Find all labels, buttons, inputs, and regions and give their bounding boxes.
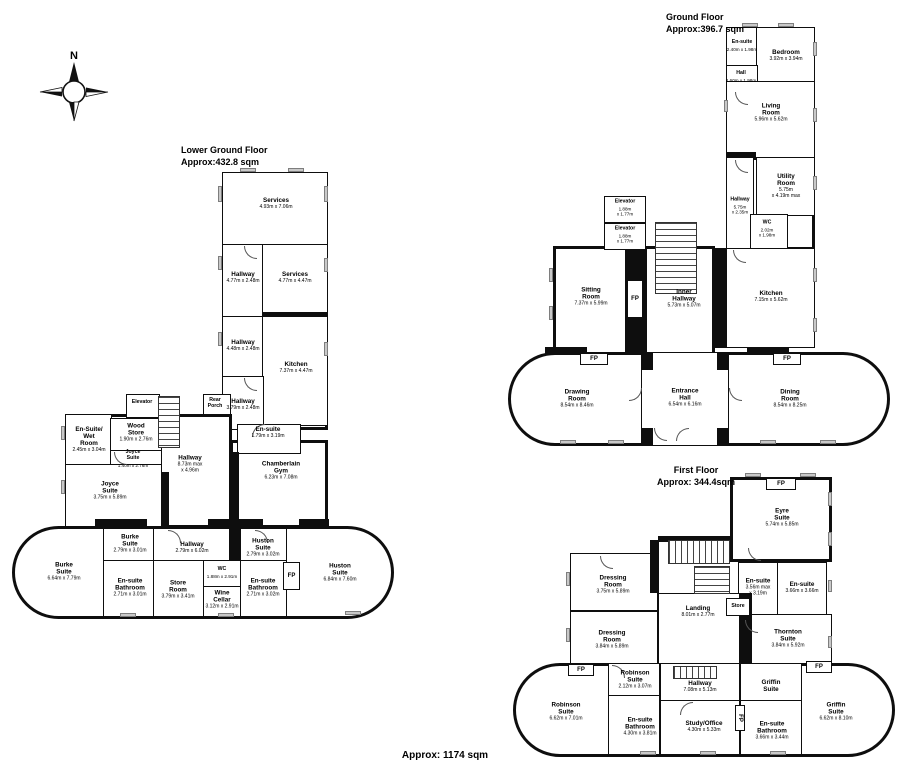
room-dimensions: 7.15m x 5.62m <box>754 298 787 304</box>
room-name: Elevator <box>615 199 635 205</box>
room-dimensions: 6.84m x 7.60m <box>323 578 356 584</box>
room-label-services: Services4.77m x 4.47m <box>278 271 311 285</box>
compass-east-point <box>86 88 108 93</box>
window-marker <box>218 332 222 346</box>
room-dimensions: 3.56m max x 3.19m <box>746 585 771 596</box>
window-marker <box>742 23 758 27</box>
room-dimensions: 1.79m x 3.19m <box>251 434 284 440</box>
room-name: WC <box>207 567 237 573</box>
window-marker <box>288 168 304 172</box>
window-marker <box>828 636 832 648</box>
room-label-living-room: Living Room5.96m x 5.62m <box>754 103 787 124</box>
room-dimensions: 6.54m x 6.16m <box>668 403 701 409</box>
room-label-thornton-suite: Thornton Suite3.84m x 5.92m <box>771 629 804 650</box>
fireplace-marker: FP <box>773 353 801 365</box>
room-name: En-Suite/ Wet Room <box>72 426 105 447</box>
room-dimensions: 7.08m x 5.13m <box>683 688 716 694</box>
room-label-hallway: Hallway8.73m max x 4.96m <box>178 454 203 473</box>
room-label-wc: WC2.02m x 1.98m <box>759 220 775 237</box>
room-name: Services <box>278 271 311 278</box>
room-label-wc: WC1.88m x 2.91m <box>207 567 237 579</box>
room-label-en-suite-bathroom: En-suite Bathroom3.66m x 3.44m <box>755 721 788 742</box>
floor-title: Ground Floor <box>666 12 744 24</box>
room-label-dressing-room: Dressing Room3.84m x 5.89m <box>595 630 628 651</box>
floor-area: Approx:396.7 sqm <box>666 24 744 36</box>
room-dimensions: 5.74m x 5.85m <box>765 523 798 529</box>
compass-west-point <box>40 92 62 97</box>
room-dimensions: 6.62m x 7.01m <box>549 717 582 723</box>
room-dimensions: 4.30m x 5.33m <box>685 728 722 734</box>
wall <box>650 540 659 593</box>
room-name: Drawing Room <box>560 389 593 403</box>
room-label-kitchen: Kitchen7.37m x 4.47m <box>279 361 312 375</box>
fireplace-label: FP <box>737 714 743 722</box>
window-marker <box>61 480 65 494</box>
floor-title: Lower Ground Floor <box>181 145 268 157</box>
compass-rose: N <box>36 48 110 124</box>
room-dimensions: 3.79m x 2.48m <box>226 406 259 412</box>
room-dimensions: 3.66m x 3.44m <box>755 736 788 742</box>
staircase <box>673 666 717 679</box>
room-name: Utility Room <box>772 173 801 187</box>
room-dimensions: 6.64m x 7.79m <box>47 577 80 583</box>
room-dimensions: 1.90m x 2.76m <box>119 438 152 444</box>
staircase <box>655 222 697 294</box>
room-label-robinson-suite: Robinson Suite6.62m x 7.01m <box>549 702 582 723</box>
window-marker <box>549 306 553 320</box>
room-label-store-room: Store Room3.79m x 3.41m <box>161 580 194 601</box>
fireplace-label: FP <box>783 356 791 362</box>
room-name: Burke Suite <box>47 562 80 576</box>
compass-circle <box>63 81 85 103</box>
fireplace-marker: FP <box>580 353 608 365</box>
fireplace-marker: FP <box>735 705 745 731</box>
room-label-utility-room: Utility Room5.75m x 4.19m max <box>772 173 801 199</box>
room-dimensions: 2.02m x 1.98m <box>759 227 775 237</box>
room-label-eyre-suite: Eyre Suite5.74m x 5.85m <box>765 508 798 529</box>
window-marker <box>120 613 136 617</box>
room-dimensions: 4.77m x 2.48m <box>226 279 259 285</box>
room-name: Hallway <box>175 541 208 548</box>
room-dimensions: 8.01m x 2.77m <box>681 613 714 619</box>
room-name: Joyce Suite <box>118 450 148 462</box>
room-label-griffin-suite: Griffin Suite6.62m x 8.10m <box>819 702 852 723</box>
room-name: WC <box>759 220 775 226</box>
room-label-hallway: Hallway4.48m x 2.48m <box>226 339 259 353</box>
window-marker <box>324 342 328 356</box>
room-name: Rear Porch <box>208 398 223 410</box>
room-label-rear-porch: Rear Porch <box>208 398 223 410</box>
room-name: Dressing Room <box>596 575 629 589</box>
room-label-landing: Landing8.01m x 2.77m <box>681 605 714 619</box>
window-marker <box>61 426 65 440</box>
room-name: Huston Suite <box>246 538 279 552</box>
window-marker <box>813 318 817 332</box>
room-label-kitchen: Kitchen7.15m x 5.62m <box>754 290 787 304</box>
room-label-bedroom: Bedroom3.92m x 3.94m <box>769 49 802 63</box>
room-name: Chamberlain Gym <box>262 461 300 475</box>
room-dimensions: 3.12m x 2.91m <box>205 605 238 611</box>
room-name: En-suite Bathroom <box>755 721 788 735</box>
room-label-burke-suite: Burke Suite2.79m x 3.01m <box>113 534 146 555</box>
room-name: Hallway <box>730 197 749 203</box>
room-dimensions: 2.79m x 6.02m <box>175 549 208 555</box>
room-name: Wine Cellar <box>205 590 238 604</box>
room-dimensions: 4.48m x 2.48m <box>226 347 259 353</box>
room-dimensions: 2.45m x 3.04m <box>72 448 105 454</box>
window-marker <box>608 440 624 444</box>
floor-title: First Floor <box>636 465 756 477</box>
room-name: Kitchen <box>279 361 312 368</box>
window-marker <box>778 23 794 27</box>
room-name: Dressing Room <box>595 630 628 644</box>
room-dimensions: 4.77m x 4.47m <box>278 279 311 285</box>
window-marker <box>813 268 817 282</box>
fireplace-label: FP <box>288 573 296 579</box>
room-dimensions: 5.96m x 5.62m <box>754 118 787 124</box>
room-dimensions: 2.71m x 3.02m <box>246 593 279 599</box>
room-dimensions: 2.40m x 1.98m <box>727 47 757 52</box>
window-marker <box>218 256 222 270</box>
window-marker <box>218 613 234 617</box>
room-dimensions: 3.84m x 5.92m <box>771 644 804 650</box>
window-marker <box>828 532 832 546</box>
room-label-griffin-suite: Griffin Suite <box>762 679 781 693</box>
compass-north-label: N <box>70 50 78 62</box>
room-dimensions: 6.62m x 8.10m <box>819 717 852 723</box>
room-dimensions: 7.37m x 4.47m <box>279 369 312 375</box>
room-name: Entrance Hall <box>668 388 701 402</box>
room-label-study-office: Study/Office4.30m x 5.33m <box>685 720 722 734</box>
staircase <box>668 540 730 564</box>
room-label-hallway: Hallway5.75m x 2.35m <box>730 197 749 214</box>
window-marker <box>640 751 656 755</box>
fireplace-marker: FP <box>627 280 643 318</box>
room-name: En-suite <box>727 40 757 46</box>
room-name: Griffin Suite <box>762 679 781 693</box>
room-name: En-suite <box>785 581 818 588</box>
window-marker <box>240 168 256 172</box>
window-marker <box>813 42 817 56</box>
room-label-dining-room: Dining Room8.54m x 8.25m <box>773 389 806 410</box>
room-name: Hallway <box>226 339 259 346</box>
room-dimensions: 4.93m x 7.06m <box>259 205 292 211</box>
room-name: Thornton Suite <box>771 629 804 643</box>
lower-ground-floor-title: Lower Ground Floor Approx:432.8 sqm <box>181 145 268 168</box>
compass-south-point <box>69 102 74 121</box>
room-label-huston-suite: Huston Suite6.84m x 7.60m <box>323 563 356 584</box>
room-dimensions: 8.54m x 8.46m <box>560 404 593 410</box>
room-label-sitting-room: Sitting Room7.37m x 5.99m <box>574 287 607 308</box>
staircase <box>158 396 180 448</box>
room-label-en-suite: En-suite2.40m x 1.98m <box>727 40 757 52</box>
room-name: Inner Hallway <box>667 289 700 303</box>
room-dimensions: 2.60m x 1.98m <box>726 78 756 83</box>
room-name: Hallway <box>226 271 259 278</box>
room-name: Huston Suite <box>323 563 356 577</box>
room-dimensions: 2.71m x 3.01m <box>113 593 146 599</box>
room-name: Hallway <box>683 680 716 687</box>
room-label-dressing-room: Dressing Room3.75m x 5.89m <box>596 575 629 596</box>
compass-north-point <box>69 62 79 82</box>
room-name: Living Room <box>754 103 787 117</box>
fireplace-label: FP <box>815 664 823 670</box>
room-label-elevator: Elevator <box>132 400 152 406</box>
room-label-entrance-hall: Entrance Hall6.54m x 6.16m <box>668 388 701 409</box>
room-dimensions: 8.54m x 8.25m <box>773 404 806 410</box>
fireplace-marker: FP <box>568 664 594 676</box>
window-marker <box>813 108 817 122</box>
room-name: Services <box>259 197 292 204</box>
room-dimensions: 6.23m x 7.08m <box>262 476 300 482</box>
window-marker <box>566 572 570 586</box>
window-marker <box>828 580 832 592</box>
room-label-huston-suite: Huston Suite2.79m x 3.02m <box>246 538 279 559</box>
room-name: Joyce Suite <box>93 481 126 495</box>
room-label-hallway: Hallway7.08m x 5.13m <box>683 680 716 694</box>
window-marker <box>218 186 222 202</box>
room-label-en-suite: En-suite1.79m x 3.19m <box>251 426 284 440</box>
room-dimensions: 7.37m x 5.99m <box>574 302 607 308</box>
room-name: Bedroom <box>769 49 802 56</box>
room-dimensions: 1.40m x 2.76m <box>118 463 148 468</box>
room-name: Store Room <box>161 580 194 594</box>
room-label-en-suite: En-suite3.56m max x 3.19m <box>746 577 771 596</box>
floorplan-sheet: N Lower Ground Floor Approx:432.8 sqm <box>0 0 897 775</box>
room-label-en-suite-wet-room: En-Suite/ Wet Room2.45m x 3.04m <box>72 426 105 454</box>
floor-area: Approx:432.8 sqm <box>181 157 268 169</box>
room-label-wood-store: Wood Store1.90m x 2.76m <box>119 423 152 444</box>
room-name: Eyre Suite <box>765 508 798 522</box>
room-name: Wood Store <box>119 423 152 437</box>
window-marker <box>724 100 728 112</box>
room-name: Kitchen <box>754 290 787 297</box>
room-label-elevator: Elevator1.88m x 1.77m <box>615 226 635 243</box>
room-label-hallway: Hallway2.79m x 6.02m <box>175 541 208 555</box>
total-area-label: Approx: 1174 sqm <box>370 750 520 761</box>
room-dimensions: 1.88m x 1.77m <box>615 206 635 216</box>
room-dimensions: 5.75m x 4.19m max <box>772 188 801 199</box>
first-floor-title: First Floor Approx: 344.4sqm <box>636 465 756 488</box>
fireplace-label: FP <box>590 356 598 362</box>
fireplace-marker: FP <box>806 661 832 673</box>
window-marker <box>324 258 328 272</box>
staircase <box>694 566 730 594</box>
room-name: En-suite Bathroom <box>113 578 146 592</box>
room-name: Griffin Suite <box>819 702 852 716</box>
room-dimensions: 2.79m x 3.02m <box>246 553 279 559</box>
room-dimensions: 1.88m x 2.91m <box>207 574 237 579</box>
room-dimensions: 3.66m x 3.66m <box>785 589 818 595</box>
room-label-en-suite-bathroom: En-suite Bathroom2.71m x 3.02m <box>246 578 279 599</box>
window-marker <box>324 186 328 202</box>
room-name: En-suite Bathroom <box>246 578 279 592</box>
window-marker <box>560 440 576 444</box>
room-name: Elevator <box>615 226 635 232</box>
room-label-burke-suite: Burke Suite6.64m x 7.79m <box>47 562 80 583</box>
room-name: Burke Suite <box>113 534 146 548</box>
room-name: Hall <box>726 71 756 77</box>
ground-floor-title: Ground Floor Approx:396.7 sqm <box>666 12 744 35</box>
room-name: En-suite <box>746 577 771 584</box>
room-name: Elevator <box>132 400 152 406</box>
room-dimensions: 4.30m x 3.81m <box>623 732 656 738</box>
fireplace-label: FP <box>631 296 639 302</box>
room-dimensions: 3.75m x 5.89m <box>596 590 629 596</box>
room-name: Sitting Room <box>574 287 607 301</box>
room-name: Hallway <box>226 398 259 405</box>
room-label-elevator: Elevator1.88m x 1.77m <box>615 199 635 216</box>
room-name: Dining Room <box>773 389 806 403</box>
room-dimensions: 3.79m x 3.41m <box>161 595 194 601</box>
window-marker <box>813 176 817 190</box>
room-label-en-suite: En-suite3.66m x 3.66m <box>785 581 818 595</box>
window-marker <box>800 473 816 477</box>
room-name: Study/Office <box>685 720 722 727</box>
room-dimensions: 3.75m x 5.89m <box>93 496 126 502</box>
room-name: En-suite <box>251 426 284 433</box>
room-label-hallway: Hallway3.79m x 2.48m <box>226 398 259 412</box>
room-label-joyce-suite: Joyce Suite1.40m x 2.76m <box>118 450 148 468</box>
room-dimensions: 2.79m x 3.01m <box>113 549 146 555</box>
window-marker <box>820 440 836 444</box>
room-name: Robinson Suite <box>618 670 651 684</box>
room-label-en-suite-bathroom: En-suite Bathroom4.30m x 3.81m <box>623 717 656 738</box>
room-name: Hallway <box>178 454 203 461</box>
window-marker <box>770 751 786 755</box>
room-name: En-suite Bathroom <box>623 717 656 731</box>
window-marker <box>760 440 776 444</box>
room-name: Robinson Suite <box>549 702 582 716</box>
window-marker <box>549 268 553 282</box>
room-dimensions: 3.84m x 5.89m <box>595 645 628 651</box>
room-label-hallway: Hallway4.77m x 2.48m <box>226 271 259 285</box>
window-marker <box>828 492 832 506</box>
room-label-en-suite-bathroom: En-suite Bathroom2.71m x 3.01m <box>113 578 146 599</box>
window-marker <box>700 751 716 755</box>
fireplace-label: FP <box>577 667 585 673</box>
room-dimensions: 8.73m max x 4.96m <box>178 462 203 473</box>
room-dimensions: 5.73m x 5.07m <box>667 304 700 310</box>
room-dimensions: 3.92m x 3.94m <box>769 57 802 63</box>
room-dimensions: 1.88m x 1.77m <box>615 233 635 243</box>
room-label-drawing-room: Drawing Room8.54m x 8.46m <box>560 389 593 410</box>
fireplace-marker: FP <box>283 562 300 590</box>
room-dimensions: 5.75m x 2.35m <box>730 204 749 214</box>
room-label-chamberlain-gym: Chamberlain Gym6.23m x 7.08m <box>262 461 300 482</box>
room-label-services: Services4.93m x 7.06m <box>259 197 292 211</box>
room-dimensions: 2.12m x 3.07m <box>618 685 651 691</box>
room-label-store: Store <box>731 604 744 610</box>
room-name: Store <box>731 604 744 610</box>
floor-area: Approx: 344.4sqm <box>636 477 756 489</box>
room-label-joyce-suite: Joyce Suite3.75m x 5.89m <box>93 481 126 502</box>
window-marker <box>345 611 361 615</box>
room-label-inner-hallway: Inner Hallway5.73m x 5.07m <box>667 289 700 310</box>
room-label-wine-cellar: Wine Cellar3.12m x 2.91m <box>205 590 238 611</box>
room-label-robinson-suite: Robinson Suite2.12m x 3.07m <box>618 670 651 691</box>
room-name: Landing <box>681 605 714 612</box>
room-label-hall: Hall2.60m x 1.98m <box>726 71 756 83</box>
fireplace-label: FP <box>777 481 785 487</box>
window-marker <box>566 628 570 642</box>
fireplace-marker: FP <box>766 478 796 490</box>
